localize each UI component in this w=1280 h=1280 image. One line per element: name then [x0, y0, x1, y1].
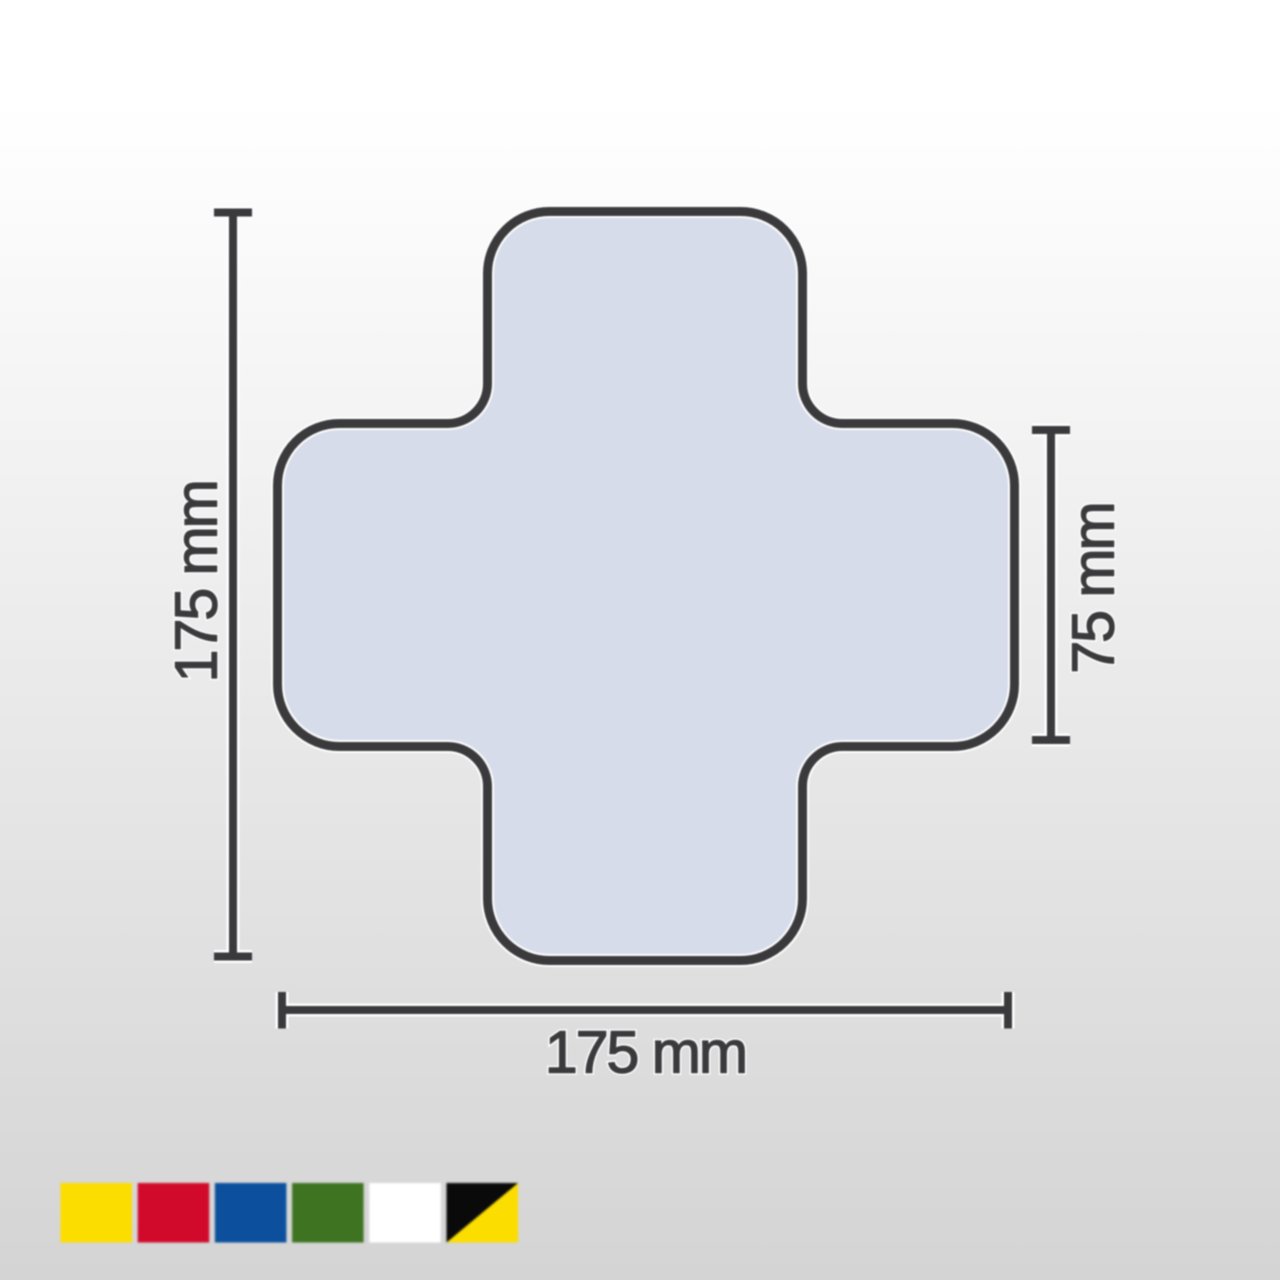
svg-text:175 mm: 175 mm [164, 481, 230, 682]
svg-text:175 mm: 175 mm [545, 1020, 746, 1086]
svg-text:75 mm: 75 mm [1061, 503, 1127, 673]
